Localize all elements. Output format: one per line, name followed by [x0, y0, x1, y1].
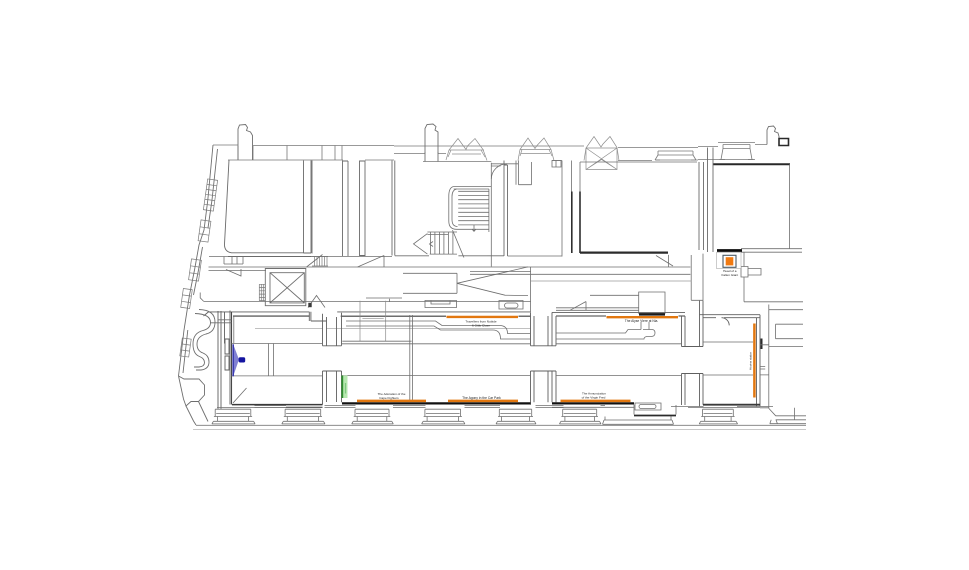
svg-text:6 Gibb Close: 6 Gibb Close [472, 324, 490, 328]
svg-text:Head of a: Head of a [723, 269, 737, 273]
svg-text:The Agony in the Car Park: The Agony in the Car Park [462, 396, 501, 400]
svg-text:Cape Fighters: Cape Fighters [379, 396, 399, 400]
svg-text:The Alyse Viere at Nia.: The Alyse Viere at Nia. [625, 319, 659, 323]
svg-text:Travellers from Nubide: Travellers from Nubide [465, 319, 496, 323]
svg-text:of the Virgin Fred: of the Virgin Fred [582, 396, 606, 400]
svg-text:At wine station: At wine station [748, 351, 752, 370]
svg-text:Fallen Giant: Fallen Giant [721, 273, 738, 277]
